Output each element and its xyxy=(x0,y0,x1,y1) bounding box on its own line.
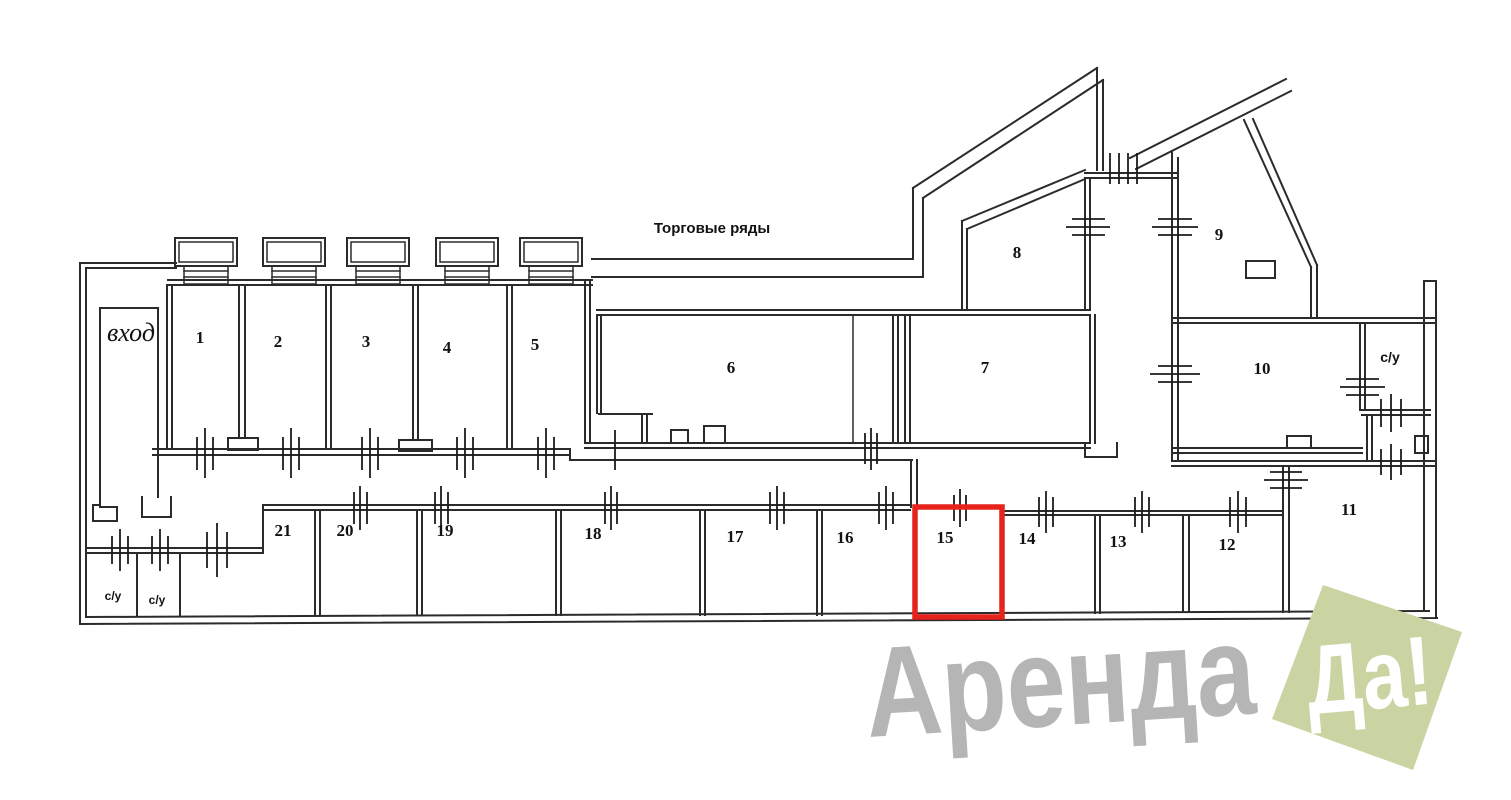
floor-plan-svg: Торговые ряды вход 1 2 3 4 5 6 7 8 9 10 … xyxy=(0,0,1511,800)
room-label-3: 3 xyxy=(362,332,371,351)
room-label-9: 9 xyxy=(1215,225,1224,244)
room-label-18: 18 xyxy=(585,524,602,543)
room-label-4: 4 xyxy=(443,338,452,357)
room-label-11: 11 xyxy=(1341,500,1357,519)
rooms-6-7-walls xyxy=(585,310,1117,457)
room-label-16: 16 xyxy=(837,528,854,547)
highlighted-room-box[interactable] xyxy=(915,507,1002,617)
window-bay xyxy=(347,238,409,284)
room-label-17: 17 xyxy=(727,527,745,546)
room-label-15: 15 xyxy=(937,528,954,547)
room-label-10: 10 xyxy=(1254,359,1271,378)
room-10-and-right-walls xyxy=(1172,323,1436,466)
window-bay xyxy=(263,238,325,284)
watermark-badge-text: Да! xyxy=(1301,615,1436,736)
room-label-13: 13 xyxy=(1110,532,1127,551)
room-label-6: 6 xyxy=(727,358,736,377)
window-bay xyxy=(175,238,237,284)
room-label-8: 8 xyxy=(1013,243,1022,262)
wc-label-3: с/у xyxy=(1380,349,1400,365)
window-bays xyxy=(175,238,582,284)
rooms-1-5-walls xyxy=(153,280,912,460)
room-9-walls xyxy=(1130,79,1434,461)
wc-label-1: с/у xyxy=(105,589,122,603)
wc-label-2: с/у xyxy=(149,593,166,607)
bottom-row-walls xyxy=(315,468,1289,615)
room-label-12: 12 xyxy=(1219,535,1236,554)
room-label-7: 7 xyxy=(981,358,990,377)
room-label-1: 1 xyxy=(196,328,205,347)
room-8-walls xyxy=(962,170,1085,310)
room-label-20: 20 xyxy=(337,521,354,540)
room-label-5: 5 xyxy=(531,335,540,354)
upper-outer-walls xyxy=(592,68,1178,310)
window-bay xyxy=(436,238,498,284)
entrance-label: вход xyxy=(107,318,155,347)
window-bay xyxy=(520,238,582,284)
floor-plan-page: Торговые ряды вход 1 2 3 4 5 6 7 8 9 10 … xyxy=(0,0,1511,800)
room-label-14: 14 xyxy=(1019,529,1037,548)
area-label: Торговые ряды xyxy=(654,220,770,237)
room-label-2: 2 xyxy=(274,332,283,351)
corridor-walls xyxy=(263,460,1283,515)
watermark-brand: Аренда xyxy=(861,598,1260,765)
room-9-fixture xyxy=(1246,261,1275,278)
door-marks xyxy=(112,153,1401,577)
room-label-19: 19 xyxy=(437,521,454,540)
room-label-21: 21 xyxy=(275,521,292,540)
wc-fixture xyxy=(1415,436,1428,453)
